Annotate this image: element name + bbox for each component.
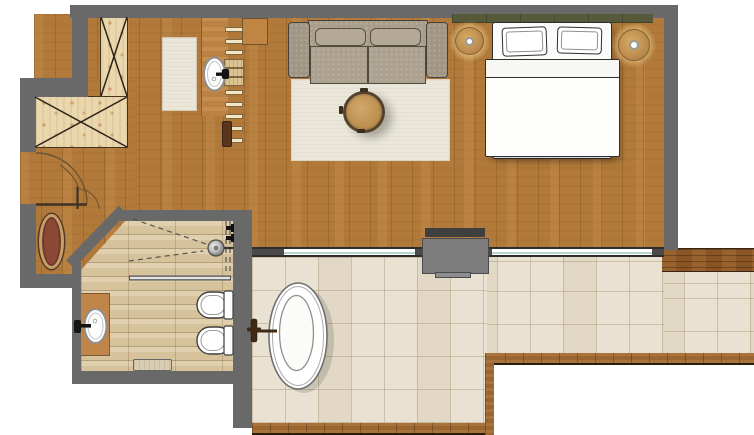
bidet-icon — [197, 326, 233, 355]
bathroom-sink-icon — [74, 309, 107, 343]
entry-door — [36, 153, 87, 205]
floor-plan — [0, 0, 754, 435]
fixtures-overlay — [0, 0, 754, 435]
wardrobe-x-marks — [35, 17, 127, 147]
bathtub-icon — [269, 283, 334, 393]
toilet-icon — [197, 291, 233, 319]
dressing-sink-icon — [204, 58, 229, 91]
coffee-table-handles — [339, 88, 368, 133]
